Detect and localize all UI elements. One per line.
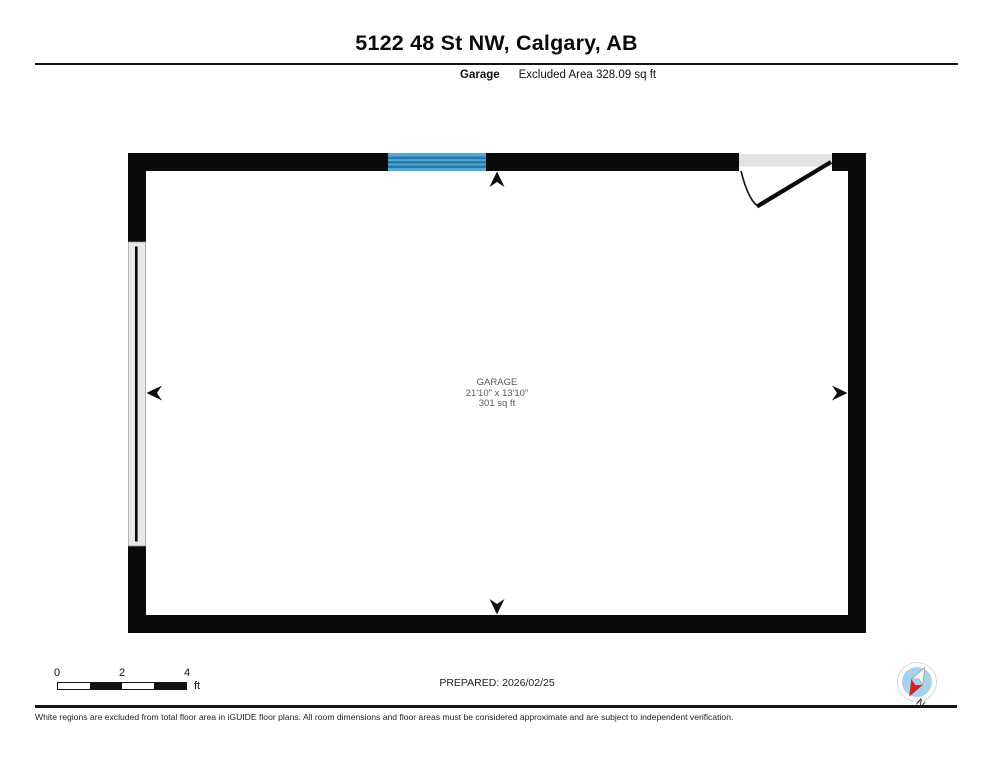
dimension-arrow-down-icon: [490, 599, 505, 615]
dimension-arrow-left-icon: [147, 386, 163, 401]
room-label: GARAGE 21'10" x 13'10" 301 sq ft: [466, 378, 529, 410]
scale-bar: 0 2 4 ft: [57, 667, 217, 693]
footer-divider: [35, 705, 957, 708]
scale-tick-4: 4: [184, 667, 190, 679]
dimension-arrow-up-icon: [490, 172, 505, 188]
scale-track: [57, 682, 187, 690]
scale-segment: [122, 683, 154, 689]
disclaimer-text: White regions are excluded from total fl…: [35, 712, 965, 722]
scale-unit-label: ft: [194, 680, 200, 692]
scale-tick-2: 2: [119, 667, 125, 679]
scale-segment: [90, 683, 122, 689]
floorplan-page: 5122 48 St NW, Calgary, AB GarageExclude…: [0, 0, 993, 768]
scale-segment: [154, 683, 186, 689]
dimension-arrow-right-icon: [832, 386, 848, 401]
room-area: 301 sq ft: [466, 399, 529, 410]
room-name: GARAGE: [466, 378, 529, 389]
compass-icon: N: [894, 659, 940, 709]
scale-segment: [58, 683, 90, 689]
door-swing-icon: [739, 153, 832, 207]
wall-right: [848, 153, 866, 633]
prepared-date: PREPARED: 2026/02/25: [439, 677, 554, 689]
scale-tick-0: 0: [54, 667, 60, 679]
wall-bottom: [128, 615, 866, 633]
window-icon: [388, 153, 486, 171]
garage-door-icon: [128, 242, 146, 546]
